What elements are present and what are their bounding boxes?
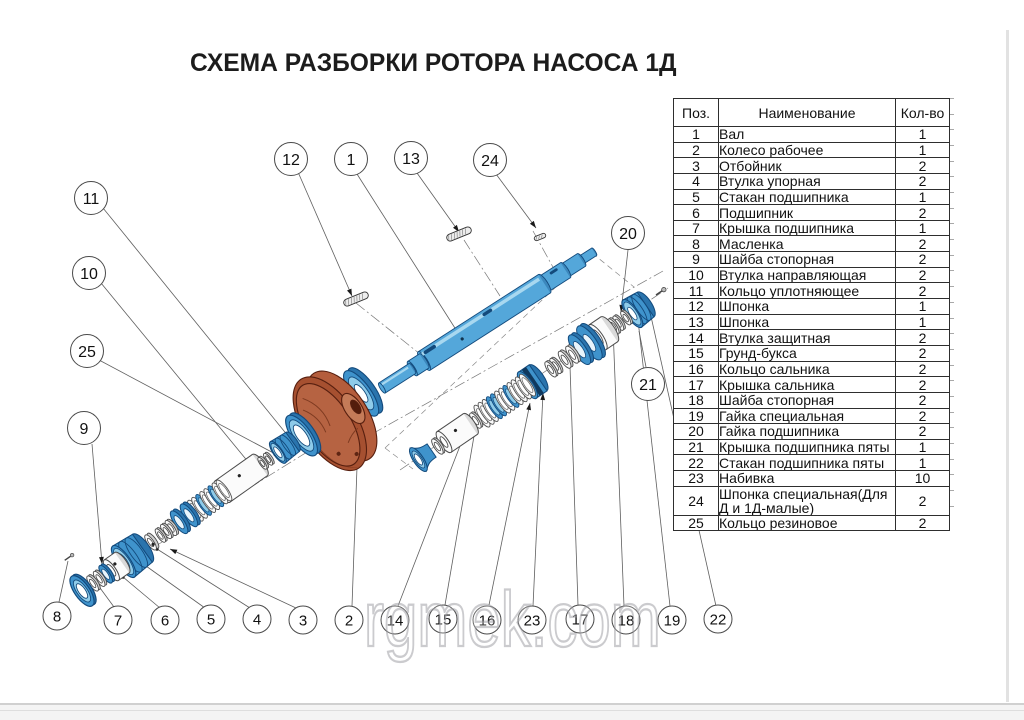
svg-text:3: 3	[299, 612, 307, 629]
svg-text:5: 5	[207, 611, 215, 628]
svg-text:25: 25	[78, 344, 96, 361]
svg-text:7: 7	[114, 612, 122, 629]
svg-text:24: 24	[481, 153, 499, 170]
svg-text:13: 13	[402, 151, 420, 168]
svg-text:2: 2	[345, 612, 353, 629]
svg-text:11: 11	[83, 191, 100, 208]
svg-text:4: 4	[253, 611, 261, 628]
svg-text:22: 22	[710, 611, 727, 628]
svg-text:21: 21	[639, 377, 657, 394]
svg-text:6: 6	[161, 612, 169, 629]
svg-text:10: 10	[80, 266, 98, 283]
svg-text:19: 19	[664, 612, 681, 629]
svg-text:1: 1	[347, 152, 356, 169]
svg-text:9: 9	[80, 421, 89, 438]
svg-text:20: 20	[619, 226, 637, 243]
svg-text:rgmek.com: rgmek.com	[364, 576, 661, 663]
svg-text:12: 12	[282, 152, 300, 169]
svg-text:8: 8	[53, 608, 61, 625]
